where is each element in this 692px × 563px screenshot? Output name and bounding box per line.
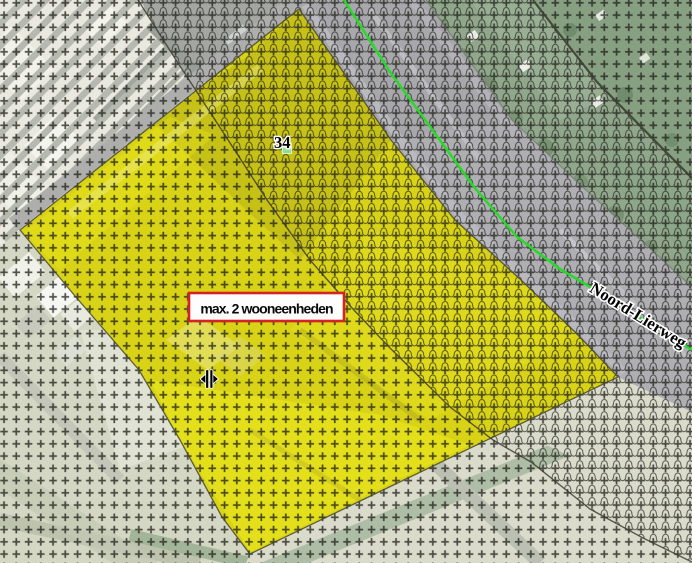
svg-text:max. 2 wooneenheden: max. 2 wooneenheden — [200, 301, 333, 317]
svg-text:34: 34 — [274, 133, 291, 152]
